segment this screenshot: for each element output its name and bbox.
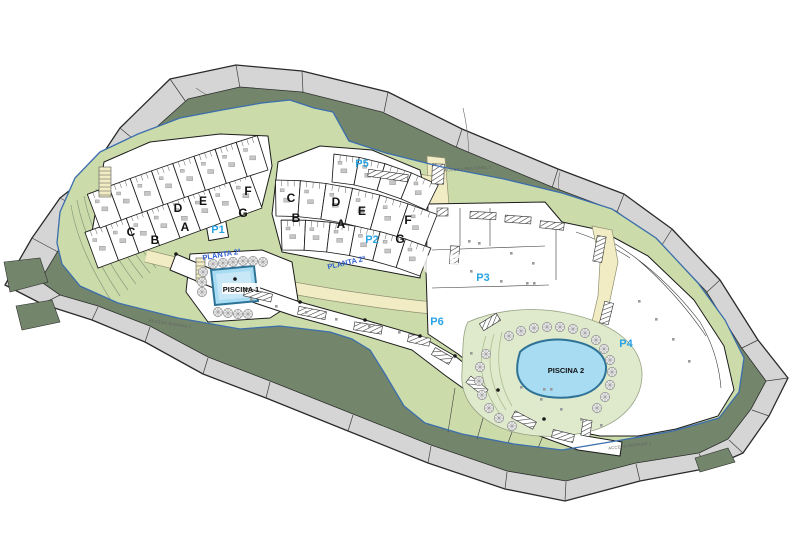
detail-dot <box>520 386 523 389</box>
block2-unit-b: B <box>292 211 301 225</box>
unit-furniture <box>358 234 362 237</box>
block2-unit-c: C <box>287 191 296 205</box>
unit-furniture <box>415 191 421 195</box>
unit-furniture <box>250 156 256 160</box>
site-plan-page: CE C B A D E F G C B A D E F G P1 P2 P3 … <box>0 0 800 533</box>
unit-furniture <box>236 186 240 189</box>
block2-unit-e: E <box>358 204 366 218</box>
unit-furniture <box>383 206 387 209</box>
unit-furniture <box>286 227 290 230</box>
stair-hatch <box>581 419 592 436</box>
detail-dot <box>398 331 401 334</box>
unit-furniture <box>383 240 387 243</box>
site-plan-drawing: CE C B A D E F G C B A D E F G P1 P2 P3 … <box>0 0 800 533</box>
block2-unit-d: D <box>332 195 341 209</box>
detail-dot <box>468 240 471 243</box>
unit-furniture <box>154 216 158 219</box>
pool1-label: PISCINA 1 <box>223 285 259 294</box>
detail-dot <box>533 282 536 285</box>
unit-furniture <box>138 184 142 187</box>
parking-marker-p1: P1 <box>211 224 224 236</box>
unit-furniture <box>117 192 121 195</box>
block1-unit-b: B <box>151 233 160 247</box>
unit-furniture <box>120 239 126 243</box>
detail-dot <box>275 305 278 308</box>
detail-dot <box>526 282 529 285</box>
detail-dot <box>250 298 253 301</box>
unit-furniture <box>187 177 193 181</box>
stair-hatch <box>505 215 531 224</box>
unit-furniture <box>338 161 342 164</box>
ramp-ladder <box>99 167 111 197</box>
unit-furniture <box>93 239 97 242</box>
unit-furniture <box>180 169 184 172</box>
detail-dot <box>540 398 543 401</box>
unit-furniture <box>113 231 117 234</box>
unit-furniture <box>201 162 205 165</box>
detail-dot <box>478 242 481 245</box>
parking-marker-p5: P5 <box>355 158 368 170</box>
unit-furniture <box>123 199 129 203</box>
unit-furniture <box>414 182 418 185</box>
unit-furniture <box>166 184 172 188</box>
detail-dot <box>560 408 563 411</box>
block1-unit-c: C <box>127 225 136 239</box>
block2-unit-f: F <box>404 213 411 227</box>
detail-dot <box>672 338 675 341</box>
unit-furniture <box>337 238 343 242</box>
parking-marker-p6: P6 <box>430 316 443 328</box>
unit-furniture <box>95 200 99 203</box>
unit-furniture <box>99 246 105 250</box>
unit-furniture <box>390 181 396 185</box>
unit-furniture <box>229 163 235 167</box>
unit-furniture <box>280 189 284 192</box>
parking-marker-p3: P3 <box>476 272 489 284</box>
structural-pillar <box>496 388 500 392</box>
block1-unit-a: A <box>181 220 190 234</box>
structural-pillar <box>233 277 237 281</box>
unit-furniture <box>409 257 415 261</box>
structural-pillar <box>298 300 302 304</box>
unit-furniture <box>411 215 415 218</box>
structural-pillar <box>418 334 422 338</box>
structural-pillar <box>453 354 457 358</box>
unit-furniture <box>408 248 412 251</box>
block2-unit-a: A <box>337 217 346 231</box>
unit-furniture <box>223 155 227 158</box>
detail-dot <box>600 424 603 427</box>
unit-furniture <box>412 226 418 230</box>
detail-dot <box>305 311 308 314</box>
detail-dot <box>335 318 338 321</box>
unit-furniture <box>216 194 220 197</box>
detail-dot <box>368 325 371 328</box>
block1-unit-d: D <box>174 201 183 215</box>
unit-furniture <box>310 228 314 231</box>
detail-dot <box>550 388 553 391</box>
unit-furniture <box>222 201 228 205</box>
unit-furniture <box>208 170 214 174</box>
structural-pillar <box>174 252 178 256</box>
block2-unit-g: G <box>395 232 404 246</box>
unit-furniture <box>140 231 146 235</box>
stair-hatch <box>470 211 496 219</box>
unit-furniture <box>356 199 360 202</box>
stair-hatch <box>437 208 448 216</box>
block1-unit-e: E <box>199 194 207 208</box>
detail-dot <box>580 418 583 421</box>
detail-dot <box>655 318 658 321</box>
block1-unit-g: G <box>238 206 247 220</box>
pool2-label: PISCINA 2 <box>548 366 584 375</box>
watermark: CE <box>422 249 472 282</box>
detail-dot <box>470 352 473 355</box>
detail-dot <box>500 280 503 283</box>
unit-furniture <box>202 209 208 213</box>
block1-unit-f: F <box>244 184 251 198</box>
unit-furniture <box>290 235 296 239</box>
unit-furniture <box>385 216 391 220</box>
unit-furniture <box>161 224 167 228</box>
structural-pillar <box>542 417 546 421</box>
unit-furniture <box>313 236 319 240</box>
unit-furniture <box>244 148 248 151</box>
unit-furniture <box>102 207 108 211</box>
detail-dot <box>688 360 691 363</box>
parking-marker-p4: P4 <box>619 338 633 350</box>
detail-dot <box>510 252 513 255</box>
unit-furniture <box>385 249 391 253</box>
unit-furniture <box>144 191 150 195</box>
unit-furniture <box>305 190 309 193</box>
detail-dot <box>638 300 641 303</box>
unit-furniture <box>308 200 314 204</box>
detail-dot <box>543 388 546 391</box>
parking-marker-p2: P2 <box>365 234 378 246</box>
structural-pillar <box>363 318 367 322</box>
unit-furniture <box>159 177 163 180</box>
unit-furniture <box>341 169 347 173</box>
detail-dot <box>532 262 535 265</box>
